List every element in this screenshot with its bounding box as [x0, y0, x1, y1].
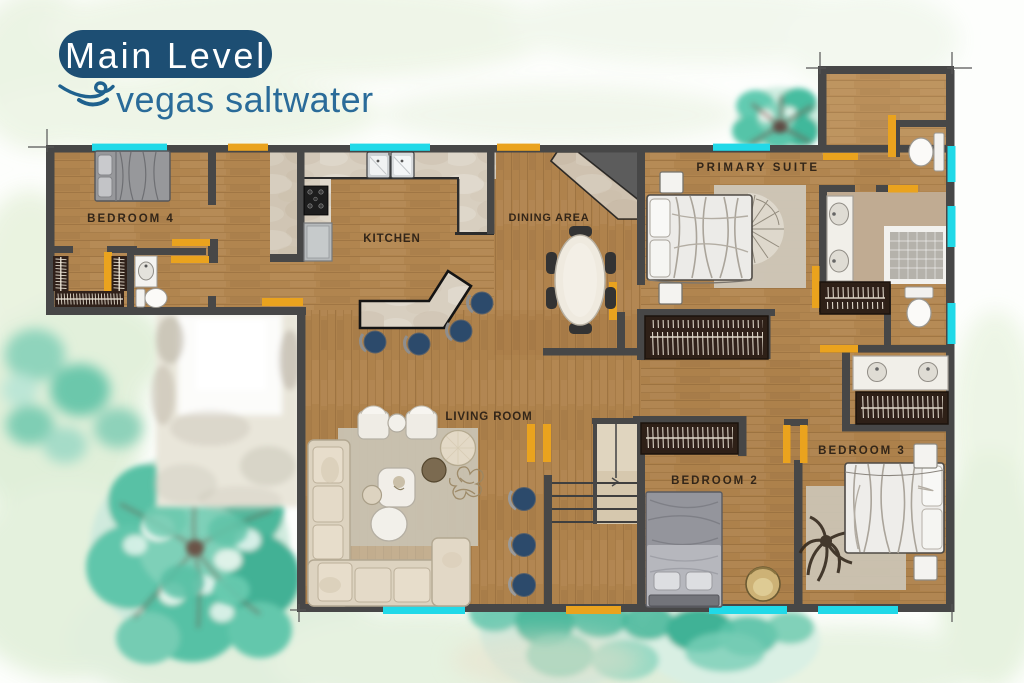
svg-text:PRIMARY SUITE: PRIMARY SUITE — [696, 162, 819, 174]
svg-text:BEDROOM 3: BEDROOM 3 — [818, 445, 906, 457]
svg-text:KITCHEN: KITCHEN — [363, 233, 420, 245]
svg-text:DINING AREA: DINING AREA — [508, 212, 589, 224]
svg-text:BEDROOM 4: BEDROOM 4 — [87, 213, 175, 225]
svg-text:LIVING ROOM: LIVING ROOM — [445, 411, 532, 423]
svg-text:Main Level: Main Level — [65, 35, 267, 76]
svg-text:vegas saltwater: vegas saltwater — [116, 79, 374, 120]
svg-text:BEDROOM 2: BEDROOM 2 — [671, 475, 759, 487]
